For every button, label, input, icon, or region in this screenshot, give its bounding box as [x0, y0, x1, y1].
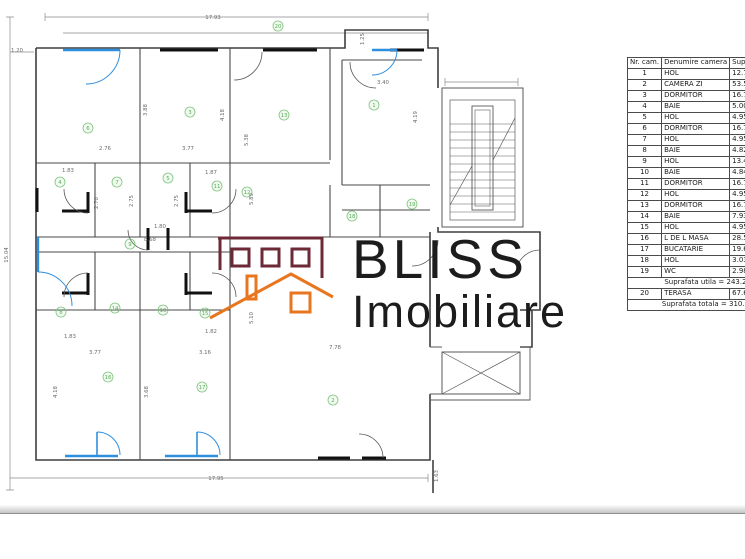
dimension-label: 2.76	[99, 146, 112, 152]
logo-subtitle: Imobiliare	[352, 289, 567, 334]
room-area-table: Nr. cam. Denumire camera Suprafata [mp] …	[627, 57, 745, 311]
header-name: Denumire camera	[662, 58, 730, 69]
listing-image-canvas: 2063131475111298141015181916172 17.931.2…	[0, 0, 745, 559]
area-table-row: 1HOL12.76	[628, 69, 745, 80]
area-table-cell: HOL	[662, 256, 730, 267]
area-table-cell: DORMITOR	[662, 179, 730, 190]
area-table-cell: L DE L MASA	[662, 234, 730, 245]
area-table-cell: 12.76	[730, 69, 745, 80]
room-marker-number: 19	[409, 202, 416, 208]
area-table-cell: 2.98	[730, 267, 745, 278]
dimension-label: 17.93	[205, 15, 220, 21]
subtotal-row: Suprafata utila = 243.25	[628, 278, 745, 289]
dimension-label: 3.77	[182, 146, 194, 152]
area-table-cell: 17	[628, 245, 662, 256]
area-table-cell: 8	[628, 146, 662, 157]
area-table-row: 15HOL4.95	[628, 223, 745, 234]
area-table-cell: HOL	[662, 223, 730, 234]
logo-house-icon	[210, 238, 333, 318]
area-table-cell: 7.93	[730, 212, 745, 223]
dimension-label: 2.70	[94, 196, 100, 209]
room-marker-number: 4	[58, 180, 62, 186]
area-table-cell: 53.58	[730, 80, 745, 91]
area-table-cell: 10	[628, 168, 662, 179]
dimension-label: 1.83	[62, 168, 74, 174]
terrace-nr: 20	[628, 289, 662, 300]
header-nr: Nr. cam.	[628, 58, 662, 69]
area-table-cell: DORMITOR	[662, 201, 730, 212]
area-table-cell: DORMITOR	[662, 91, 730, 102]
room-marker-number: 15	[202, 311, 209, 317]
dimension-label: 1.83	[64, 334, 76, 340]
dimension-label: 17.95	[208, 476, 223, 482]
area-table-row: 11DORMITOR16.73	[628, 179, 745, 190]
area-table-row: 10BAIE4.84	[628, 168, 745, 179]
elevator-shaft	[430, 347, 530, 400]
room-marker-number: 6	[86, 126, 90, 132]
room-marker-number: 8	[59, 310, 63, 316]
area-table-cell: 3.03	[730, 256, 745, 267]
area-table-cell: 4.95	[730, 135, 745, 146]
area-table-cell: 5	[628, 113, 662, 124]
room-marker-number: 16	[105, 375, 112, 381]
terrace-name: TERASA	[662, 289, 730, 300]
area-table-cell: 4.82	[730, 146, 745, 157]
dimension-label: 7.78	[329, 345, 342, 351]
blue-windows	[38, 50, 397, 456]
area-table-cell: 15	[628, 223, 662, 234]
dimension-label: 4.18	[53, 385, 59, 398]
table-header-row: Nr. cam. Denumire camera Suprafata [mp]	[628, 58, 745, 69]
dimension-label: 1.20	[11, 48, 24, 54]
area-table-cell: BUCATARIE	[662, 245, 730, 256]
subtotal-text: Suprafata utila = 243.25	[628, 278, 745, 289]
room-marker-number: 10	[160, 308, 167, 314]
area-table-row: 4BAIE5.00	[628, 102, 745, 113]
area-table-cell: 16	[628, 234, 662, 245]
dimension-label: 5.89	[249, 192, 255, 205]
area-table-cell: 3	[628, 91, 662, 102]
room-marker-number: 2	[331, 398, 334, 404]
area-table-cell: 16.73	[730, 201, 745, 212]
area-table-cell: 1	[628, 69, 662, 80]
total-text: Suprafata totala = 310.93	[628, 300, 745, 311]
bottom-divider-bar	[0, 505, 745, 514]
area-table-cell: 13.46	[730, 157, 745, 168]
area-table-row: 16L DE L MASA28.51	[628, 234, 745, 245]
area-table-cell: 13	[628, 201, 662, 212]
area-table-cell: 4.95	[730, 223, 745, 234]
area-table-cell: BAIE	[662, 212, 730, 223]
dimension-label: 3.40	[377, 80, 390, 86]
area-table-cell: 4.84	[730, 168, 745, 179]
area-table-cell: 4	[628, 102, 662, 113]
area-table-row: 3DORMITOR16.73	[628, 91, 745, 102]
area-table-cell: 2	[628, 80, 662, 91]
area-table-cell: 14	[628, 212, 662, 223]
area-table-cell: WC	[662, 267, 730, 278]
area-table-cell: HOL	[662, 135, 730, 146]
area-table-cell: HOL	[662, 113, 730, 124]
room-marker-number: 20	[275, 24, 282, 30]
dimension-label: 1.87	[205, 170, 217, 176]
dimension-label: 8.68	[144, 237, 157, 243]
room-marker-number: 17	[199, 385, 206, 391]
area-table-cell: 16.73	[730, 179, 745, 190]
dimension-label: 4.18	[220, 108, 226, 121]
room-marker-number: 9	[128, 242, 132, 248]
dimension-label: 2.75	[129, 195, 135, 207]
area-table-row: 12HOL4.95	[628, 190, 745, 201]
room-marker-number: 1	[372, 103, 375, 109]
dimension-label: 1.63	[434, 470, 440, 482]
area-table-cell: 16.73	[730, 91, 745, 102]
room-marker-number: 5	[166, 176, 169, 182]
dimension-label: 3.77	[89, 350, 101, 356]
area-table-cell: 28.51	[730, 234, 745, 245]
area-table-cell: 12	[628, 190, 662, 201]
dimension-label: 3.16	[199, 350, 212, 356]
dimension-label: 15.04	[4, 247, 10, 263]
area-table-cell: 6	[628, 124, 662, 135]
area-table-cell: DORMITOR	[662, 124, 730, 135]
area-table-cell: 11	[628, 179, 662, 190]
area-table-row: 14BAIE7.93	[628, 212, 745, 223]
area-table-cell: BAIE	[662, 102, 730, 113]
room-marker-number: 18	[349, 214, 356, 220]
room-marker-number: 13	[281, 113, 288, 119]
area-table-row: 18HOL3.03	[628, 256, 745, 267]
area-table-row: 13DORMITOR16.73	[628, 201, 745, 212]
area-table-cell: 18	[628, 256, 662, 267]
area-table-row: 7HOL4.95	[628, 135, 745, 146]
area-table-cell: 9	[628, 157, 662, 168]
room-marker-number: 14	[112, 306, 119, 312]
total-row: Suprafata totala = 310.93	[628, 300, 745, 311]
room-markers: 2063131475111298141015181916172	[55, 21, 417, 405]
header-area: Suprafata [mp]	[730, 58, 745, 69]
area-table-cell: 7	[628, 135, 662, 146]
room-marker-number: 7	[115, 180, 118, 186]
area-table-cell: 4.95	[730, 113, 745, 124]
dimension-label: 2.75	[174, 195, 180, 207]
area-table-cell: 19	[628, 267, 662, 278]
area-table-cell: HOL	[662, 157, 730, 168]
dimension-label: 5.38	[244, 133, 250, 146]
area-table-row: 5HOL4.95	[628, 113, 745, 124]
area-table-cell: HOL	[662, 190, 730, 201]
room-marker-number: 3	[188, 110, 191, 116]
area-table-cell: 19.62	[730, 245, 745, 256]
dimension-label: 3.68	[144, 385, 150, 398]
dimension-label: 1.80	[154, 224, 167, 230]
logo-title: BLISS	[352, 232, 528, 287]
area-table-cell: 5.00	[730, 102, 745, 113]
dimension-label: 1.82	[205, 329, 217, 335]
area-table-row: 17BUCATARIE19.62	[628, 245, 745, 256]
area-table-cell: BAIE	[662, 168, 730, 179]
area-table-cell: 16.73	[730, 124, 745, 135]
area-table-cell: CAMERA ZI	[662, 80, 730, 91]
area-table-row: 6DORMITOR16.73	[628, 124, 745, 135]
dimension-label: 3.88	[143, 103, 149, 116]
area-table-row: 8BAIE4.82	[628, 146, 745, 157]
room-marker-number: 11	[214, 184, 221, 190]
dimension-label: 5.10	[249, 311, 255, 324]
terrace-row: 20 TERASA 67.68	[628, 289, 745, 300]
dimension-label: 1.25	[360, 33, 366, 45]
area-table-cell: 4.95	[730, 190, 745, 201]
area-table-row: 9HOL13.46	[628, 157, 745, 168]
area-table-cell: BAIE	[662, 146, 730, 157]
area-table-row: 19WC2.98	[628, 267, 745, 278]
staircase	[442, 88, 523, 227]
terrace-area: 67.68	[730, 289, 745, 300]
dimension-label: 4.19	[413, 110, 419, 123]
area-table-row: 2CAMERA ZI53.58	[628, 80, 745, 91]
area-table-cell: HOL	[662, 69, 730, 80]
